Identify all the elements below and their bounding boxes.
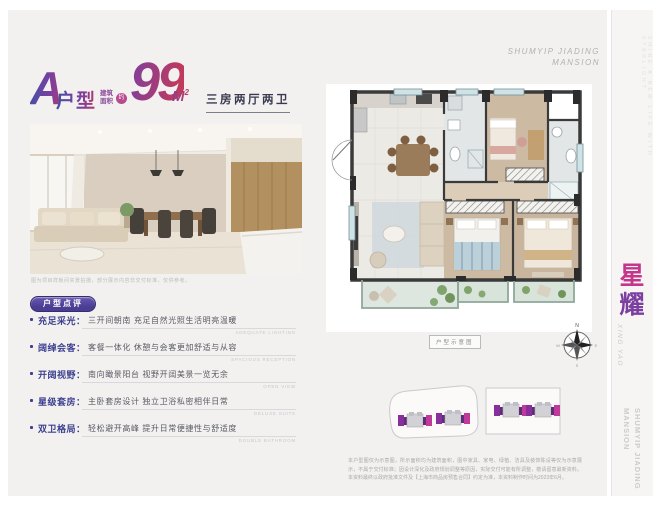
logo-english: XING YAO xyxy=(616,324,623,384)
layout-text: 三房两厅两卫 xyxy=(206,91,290,113)
master-bedroom xyxy=(517,201,579,277)
review-list: 充足采光： 三开间朝南 充足自然光照生活明亮温暖 ADEQUATE LIGHTI… xyxy=(30,314,298,449)
review-item-suite: 星级套房： 主卧套房设计 独立卫浴私密相伴日常 DELUXE SUITE xyxy=(30,395,298,422)
review-item-lighting: 充足采光： 三开间朝南 充足自然光照生活明亮温暖 ADEQUATE LIGHTI… xyxy=(30,314,298,341)
bullet-icon xyxy=(30,345,33,348)
divider xyxy=(82,436,296,437)
area-label-line1: 建筑 xyxy=(100,90,113,97)
review-label: 开阔视野： xyxy=(38,368,86,381)
brand-line2: MANSION xyxy=(440,57,600,68)
review-text: 南向瞰景阳台 视野开阔美景一览无余 xyxy=(88,369,228,380)
floor-plan xyxy=(326,84,592,332)
bedroom-1 xyxy=(446,201,508,270)
brand-logo: 星 耀 xyxy=(617,262,647,320)
bullet-icon xyxy=(30,318,33,321)
interior-photo-art xyxy=(30,124,302,274)
review-item-bathrooms: 双卫格局： 轻松避开高峰 提升日常便捷性与舒适度 DOUBLE BATHROOM xyxy=(30,422,298,449)
divider xyxy=(82,409,296,410)
logo-char-1: 星 xyxy=(617,262,647,291)
brand-english: SHUMYIP JIADING MANSION xyxy=(440,46,600,68)
review-item-view: 开阔视野： 南向瞰景阳台 视野开阔美景一览无余 OPEN VIEW xyxy=(30,368,298,395)
svg-text:E: E xyxy=(595,343,598,348)
review-label: 星级套房： xyxy=(38,395,86,408)
divider xyxy=(82,328,296,329)
review-text: 三开间朝南 充足自然光照生活明亮温暖 xyxy=(88,315,237,326)
review-en: OPEN VIEW xyxy=(263,384,296,389)
compass-icon: N E S W xyxy=(556,322,598,368)
sidebar-tagline: SHINE A NEW LIFE WITH STARLIGHT xyxy=(640,36,652,176)
svg-text:N: N xyxy=(575,323,579,329)
review-badge: 户型点评 xyxy=(30,296,96,312)
review-label: 双卫格局： xyxy=(38,422,86,435)
divider xyxy=(82,382,296,383)
area-label-line2: 面积 xyxy=(100,98,113,105)
brand-line1: SHUMYIP JIADING xyxy=(440,46,600,57)
review-text: 客餐一体化 休憩与会客更加舒适与从容 xyxy=(88,342,237,353)
sidebar-brand-vertical: SHUMYIP JIADING MANSION xyxy=(621,408,643,500)
review-en: SPACIOUS RECEPTION xyxy=(231,357,296,362)
plan-caption: 户型示意图 xyxy=(429,335,481,349)
area-approx-badge: 约 xyxy=(116,93,127,104)
building-key-map xyxy=(374,382,566,446)
photo-caption: 图为项目样板间实景拍摄，部分展示内容非交付标准，仅供参考。 xyxy=(31,277,191,284)
unit-type-label: 户型 xyxy=(56,86,96,113)
floor-plan-svg xyxy=(326,84,592,332)
brochure-page: A 户型 建筑 面积 约 99 M2 三房两厅两卫 xyxy=(0,0,660,505)
divider xyxy=(82,355,296,356)
review-text: 轻松避开高峰 提升日常便捷性与舒适度 xyxy=(88,423,237,434)
review-en: DOUBLE BATHROOM xyxy=(239,438,296,443)
logo-char-2: 耀 xyxy=(617,291,647,320)
bullet-icon xyxy=(30,426,33,429)
bullet-icon xyxy=(30,399,33,402)
svg-text:W: W xyxy=(556,343,560,348)
review-text: 主卧套房设计 独立卫浴私密相伴日常 xyxy=(88,396,228,407)
interior-photo xyxy=(30,124,302,274)
bullet-icon xyxy=(30,372,33,375)
area-unit: M2 xyxy=(172,88,189,105)
review-en: DELUXE SUITE xyxy=(254,411,296,416)
review-en: ADEQUATE LIGHTING xyxy=(235,330,296,335)
unit-title-block: A 户型 建筑 面积 约 99 M2 三房两厅两卫 xyxy=(30,64,320,120)
review-label: 充足采光： xyxy=(38,314,86,327)
svg-text:S: S xyxy=(576,363,579,368)
disclaimer-text: 本户型图仅为示意图，所示面积均为建筑面积，图中家具、家电、绿植、洁具及装饰陈设等… xyxy=(348,457,582,483)
review-item-reception: 阔绰会客： 客餐一体化 休憩与会客更加舒适与从容 SPACIOUS RECEPT… xyxy=(30,341,298,368)
review-label: 阔绰会客： xyxy=(38,341,86,354)
